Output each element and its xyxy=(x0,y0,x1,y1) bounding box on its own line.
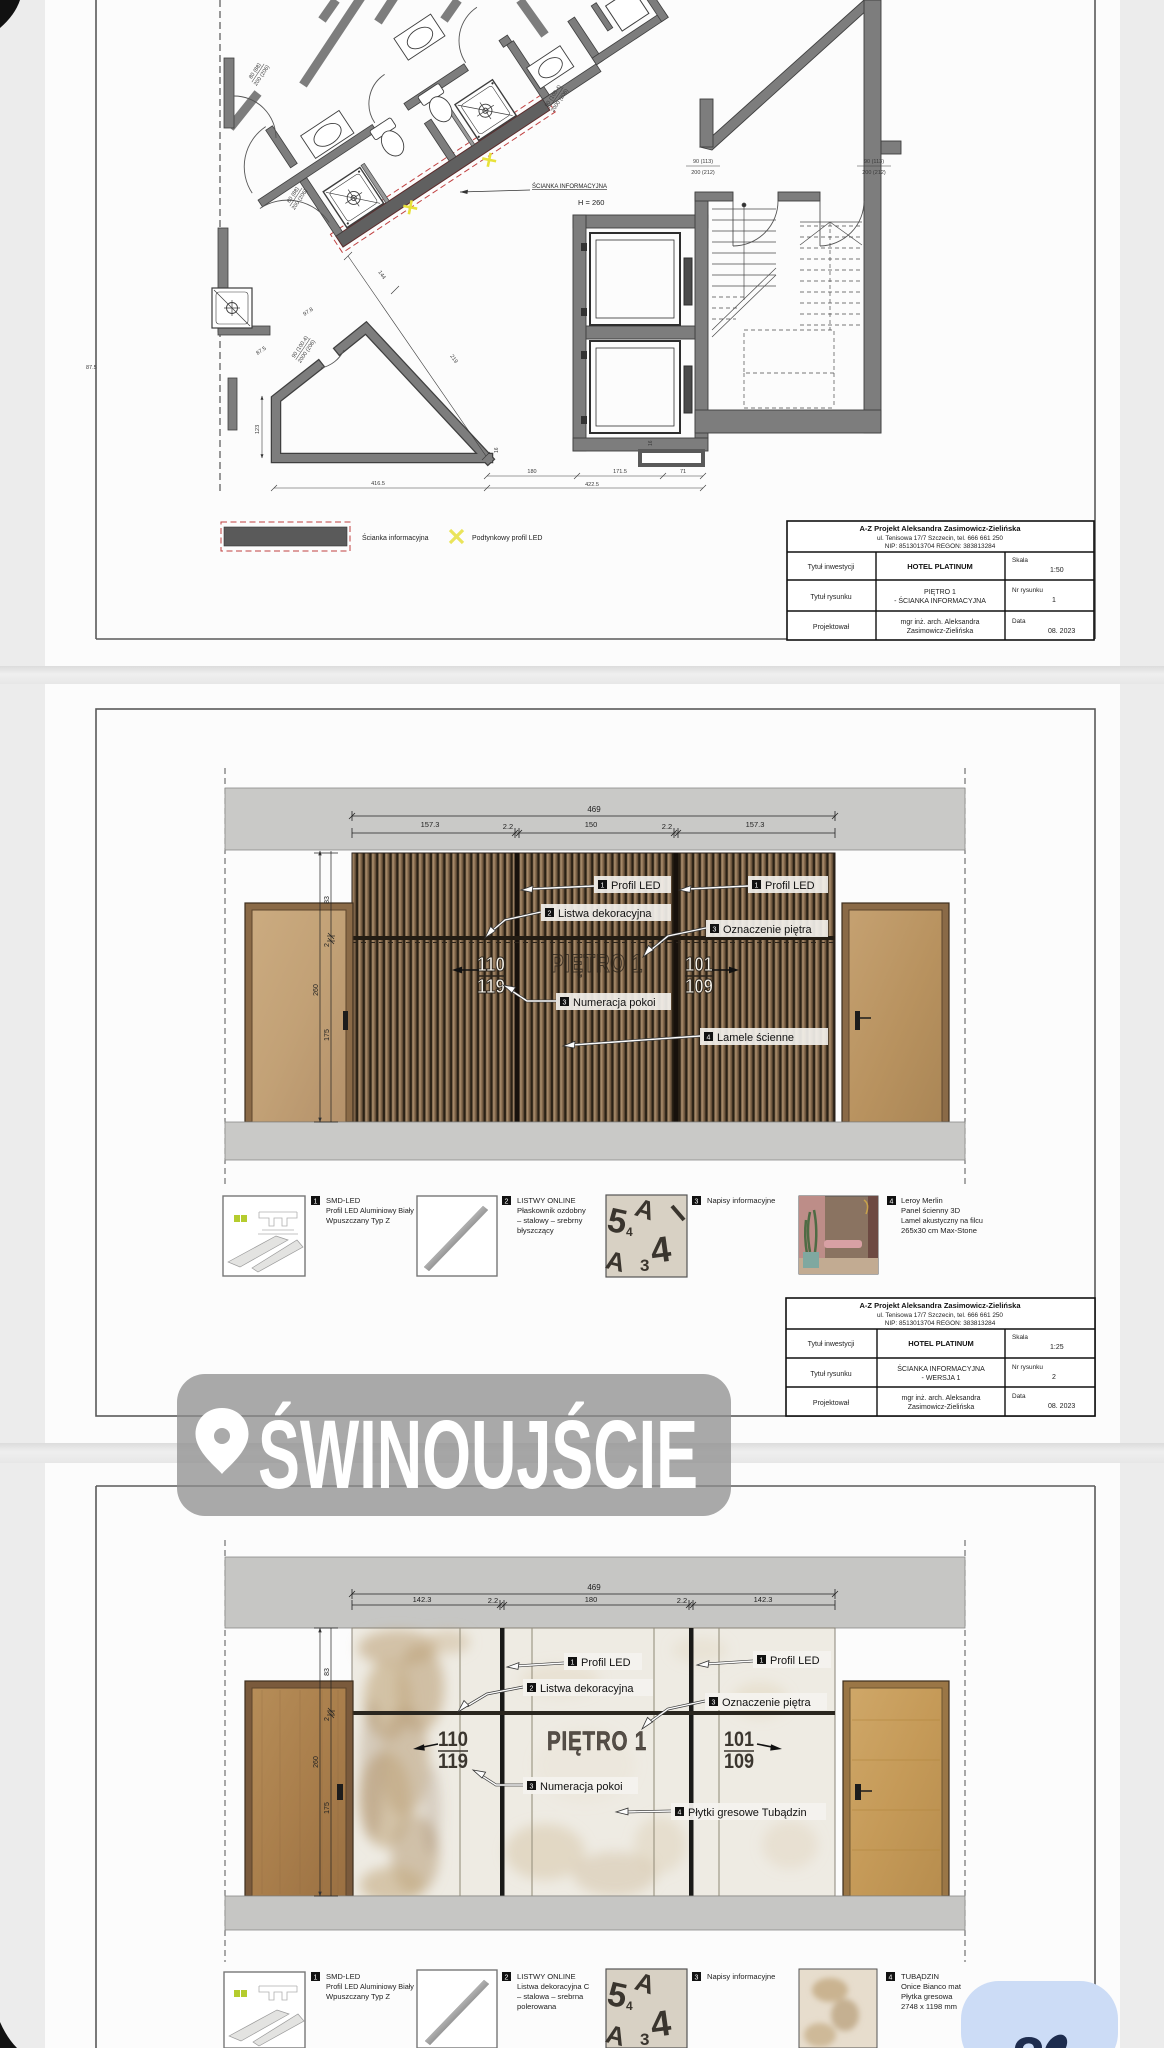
svg-text:87.5: 87.5 xyxy=(86,365,97,371)
svg-text:HOTEL PLATINUM: HOTEL PLATINUM xyxy=(908,1339,974,1348)
svg-text:Listwa dekoracyjna: Listwa dekoracyjna xyxy=(558,908,652,920)
svg-text:1: 1 xyxy=(601,883,605,890)
svg-text:Leroy Merlin: Leroy Merlin xyxy=(901,1196,943,1205)
svg-text:Wpuszczany Typ Z: Wpuszczany Typ Z xyxy=(326,1992,390,2001)
svg-text:1: 1 xyxy=(760,1658,764,1665)
svg-text:119: 119 xyxy=(477,976,505,998)
svg-text:Płytki gresowe Tubądzin: Płytki gresowe Tubądzin xyxy=(688,1807,807,1819)
svg-text:A-Z Projekt Aleksandra Zasimow: A-Z Projekt Aleksandra Zasimowicz-Zieliń… xyxy=(859,1301,1021,1310)
svg-text:błyszczący: błyszczący xyxy=(517,1226,554,1235)
svg-text:109: 109 xyxy=(685,976,713,998)
svg-text:Ścianka informacyjna: Ścianka informacyjna xyxy=(362,533,429,542)
svg-text:260: 260 xyxy=(313,1756,320,1768)
svg-text:– stalowy – srebrny: – stalowy – srebrny xyxy=(517,1216,583,1225)
svg-text:Lamele ścienne: Lamele ścienne xyxy=(717,1032,794,1044)
svg-text:Skala: Skala xyxy=(1012,557,1028,564)
svg-text:110: 110 xyxy=(438,1728,468,1751)
svg-text:4: 4 xyxy=(626,1999,633,2013)
svg-text:2: 2 xyxy=(1052,1374,1056,1381)
svg-text:SMD-LED: SMD-LED xyxy=(326,1196,361,1205)
svg-text:119: 119 xyxy=(438,1750,468,1773)
svg-text:Listwa dekoracyjna: Listwa dekoracyjna xyxy=(540,1683,634,1695)
svg-text:1:50: 1:50 xyxy=(1050,567,1064,574)
svg-text:2: 2 xyxy=(324,943,331,947)
svg-text:Projektował: Projektował xyxy=(813,1400,850,1407)
svg-text:4: 4 xyxy=(678,1810,682,1817)
svg-text:PIĘTRO 1: PIĘTRO 1 xyxy=(547,1726,647,1756)
svg-text:3: 3 xyxy=(712,1700,716,1707)
svg-text:157.3: 157.3 xyxy=(746,820,765,829)
svg-text:90 (113): 90 (113) xyxy=(693,159,713,165)
svg-text:2: 2 xyxy=(505,1199,509,1206)
svg-text:ŚWINOUJŚCIE: ŚWINOUJŚCIE xyxy=(258,1400,698,1509)
svg-text:PIĘTRO 1: PIĘTRO 1 xyxy=(924,589,956,596)
svg-text:LISTWY ONLINE: LISTWY ONLINE xyxy=(517,1972,576,1981)
svg-text:Onice Bianco mat: Onice Bianco mat xyxy=(901,1982,962,1991)
svg-text:Nr rysunku: Nr rysunku xyxy=(1012,1364,1043,1371)
svg-text:2748 x 1198 mm: 2748 x 1198 mm xyxy=(901,2002,957,2011)
svg-text:Tytuł rysunku: Tytuł rysunku xyxy=(810,594,851,601)
svg-text:08. 2023: 08. 2023 xyxy=(1048,628,1075,635)
svg-text:2: 2 xyxy=(530,1686,534,1693)
svg-text:SMD-LED: SMD-LED xyxy=(326,1972,361,1981)
svg-text:416.5: 416.5 xyxy=(371,481,385,487)
svg-text:101: 101 xyxy=(685,954,713,976)
svg-text:123: 123 xyxy=(255,425,261,434)
svg-text:4: 4 xyxy=(890,1199,894,1206)
svg-text:171.5: 171.5 xyxy=(613,469,627,475)
svg-text:3: 3 xyxy=(695,1975,699,1982)
svg-text:260: 260 xyxy=(313,984,320,996)
svg-text:142.3: 142.3 xyxy=(754,1595,773,1604)
svg-text:Zasimowicz-Zielińska: Zasimowicz-Zielińska xyxy=(907,628,974,635)
svg-text:Płaskownik ozdobny: Płaskownik ozdobny xyxy=(517,1206,586,1215)
svg-text:Projektował: Projektował xyxy=(813,624,850,631)
svg-text:265x30 cm Max-Stone: 265x30 cm Max-Stone xyxy=(901,1226,977,1235)
svg-text:ul. Tenisowa 17/7 Szczecin, te: ul. Tenisowa 17/7 Szczecin, tel. 666 661… xyxy=(877,1312,1003,1319)
svg-text:2: 2 xyxy=(548,911,552,918)
svg-text:Tytuł rysunku: Tytuł rysunku xyxy=(810,1371,851,1378)
svg-text:83: 83 xyxy=(324,896,331,904)
svg-text:1: 1 xyxy=(571,1660,575,1667)
svg-text:90 (113): 90 (113) xyxy=(864,159,884,165)
svg-text:180: 180 xyxy=(585,1595,598,1604)
svg-text:16: 16 xyxy=(494,447,500,453)
svg-text:Data: Data xyxy=(1012,1393,1026,1400)
svg-text:Profil LED: Profil LED xyxy=(581,1657,631,1669)
svg-text:2: 2 xyxy=(505,1975,509,1982)
svg-text:Listwa dekoracyjna C: Listwa dekoracyjna C xyxy=(517,1982,590,1991)
svg-text:1: 1 xyxy=(314,1975,318,1982)
svg-text:Płytka gresowa: Płytka gresowa xyxy=(901,1992,953,2001)
svg-text:H = 260: H = 260 xyxy=(578,198,604,207)
svg-text:- WERSJA 1: - WERSJA 1 xyxy=(922,1375,961,1382)
svg-text:110: 110 xyxy=(477,954,505,976)
svg-text:Profil LED: Profil LED xyxy=(765,880,815,892)
svg-text:NIP: 8513013704 REGON: 3838132: NIP: 8513013704 REGON: 383813284 xyxy=(885,1320,996,1327)
svg-text:Oznaczenie piętra: Oznaczenie piętra xyxy=(723,924,813,936)
svg-text:A-Z Projekt Aleksandra Zasimow: A-Z Projekt Aleksandra Zasimowicz-Zieliń… xyxy=(859,524,1021,533)
svg-text:200 (212): 200 (212) xyxy=(862,170,886,176)
svg-text:469: 469 xyxy=(587,805,601,814)
svg-text:Napisy informacyjne: Napisy informacyjne xyxy=(707,1972,775,1981)
svg-text:109: 109 xyxy=(724,1750,754,1773)
svg-text:2.2: 2.2 xyxy=(503,822,513,831)
svg-text:Skala: Skala xyxy=(1012,1334,1028,1341)
svg-text:101: 101 xyxy=(724,1728,754,1751)
svg-text:142.3: 142.3 xyxy=(413,1595,432,1604)
svg-text:Profil LED: Profil LED xyxy=(770,1655,820,1667)
svg-text:2.2: 2.2 xyxy=(662,822,672,831)
svg-text:Numeracja pokoi: Numeracja pokoi xyxy=(573,997,656,1009)
svg-text:1: 1 xyxy=(755,883,759,890)
svg-text:16: 16 xyxy=(648,440,654,446)
svg-text:Profil LED: Profil LED xyxy=(611,880,661,892)
svg-text:469: 469 xyxy=(587,1583,601,1592)
svg-text:83: 83 xyxy=(324,1668,331,1676)
svg-text:3: 3 xyxy=(563,1000,567,1007)
svg-text:PIĘTRO 1: PIĘTRO 1 xyxy=(551,950,643,978)
svg-text:Data: Data xyxy=(1012,618,1026,625)
svg-text:2: 2 xyxy=(324,1717,331,1721)
svg-text:2.2: 2.2 xyxy=(677,1596,687,1605)
svg-text:Panel ścienny 3D: Panel ścienny 3D xyxy=(901,1206,961,1215)
svg-text:422.5: 422.5 xyxy=(585,482,599,488)
svg-text:Tytuł inwestycji: Tytuł inwestycji xyxy=(808,1341,855,1348)
svg-text:polerowana: polerowana xyxy=(517,2002,557,2011)
svg-text:Oznaczenie piętra: Oznaczenie piętra xyxy=(722,1697,812,1709)
svg-text:Tytuł inwestycji: Tytuł inwestycji xyxy=(808,564,855,571)
svg-text:Profil LED Aluminiowy Biały: Profil LED Aluminiowy Biały xyxy=(326,1206,414,1215)
svg-text:Profil LED Aluminiowy Biały: Profil LED Aluminiowy Biały xyxy=(326,1982,414,1991)
svg-text:4: 4 xyxy=(626,1225,633,1239)
svg-text:– stalowa – srebrna: – stalowa – srebrna xyxy=(517,1992,584,2001)
svg-text:1: 1 xyxy=(314,1199,318,1206)
svg-text:71: 71 xyxy=(680,469,686,475)
svg-text:Wpuszczany Typ Z: Wpuszczany Typ Z xyxy=(326,1216,390,1225)
svg-text:NIP: 8513013704 REGON: 3838132: NIP: 8513013704 REGON: 383813284 xyxy=(885,543,996,550)
svg-text:4: 4 xyxy=(889,1975,893,1982)
svg-text:150: 150 xyxy=(585,820,598,829)
svg-text:Numeracja pokoi: Numeracja pokoi xyxy=(540,1781,623,1793)
svg-text:3: 3 xyxy=(1013,2026,1045,2048)
svg-text:mgr inż. arch. Aleksandra: mgr inż. arch. Aleksandra xyxy=(902,1395,981,1402)
svg-text:3: 3 xyxy=(530,1784,534,1791)
svg-text:180: 180 xyxy=(527,469,536,475)
svg-text:200 (212): 200 (212) xyxy=(691,170,715,176)
svg-text:4: 4 xyxy=(707,1035,711,1042)
svg-text:175: 175 xyxy=(324,1802,331,1814)
svg-text:3: 3 xyxy=(695,1199,699,1206)
svg-text:2.2: 2.2 xyxy=(488,1596,498,1605)
svg-text:Lamel akustyczny na filcu: Lamel akustyczny na filcu xyxy=(901,1216,983,1225)
svg-text:TUBĄDZIN: TUBĄDZIN xyxy=(901,1972,939,1981)
svg-text:157.3: 157.3 xyxy=(421,820,440,829)
svg-text:1:25: 1:25 xyxy=(1050,1344,1064,1351)
svg-text:ul. Tenisowa 17/7 Szczecin, te: ul. Tenisowa 17/7 Szczecin, tel. 666 661… xyxy=(877,535,1003,542)
svg-text:- ŚCIANKA INFORMACYJNA: - ŚCIANKA INFORMACYJNA xyxy=(894,596,986,605)
svg-text:3: 3 xyxy=(640,2030,649,2048)
svg-text:ŚCIANKA INFORMACYJNA: ŚCIANKA INFORMACYJNA xyxy=(532,182,607,190)
svg-text:Zasimowicz-Zielińska: Zasimowicz-Zielińska xyxy=(908,1404,975,1411)
svg-text:Nr rysunku: Nr rysunku xyxy=(1012,587,1043,594)
svg-text:3: 3 xyxy=(640,1256,649,1275)
svg-text:mgr inż. arch. Aleksandra: mgr inż. arch. Aleksandra xyxy=(901,619,980,626)
svg-text:Napisy informacyjne: Napisy informacyjne xyxy=(707,1196,775,1205)
svg-text:Podtynkowy profil LED: Podtynkowy profil LED xyxy=(472,535,542,542)
svg-text:ŚCIANKA INFORMACYJNA: ŚCIANKA INFORMACYJNA xyxy=(897,1364,985,1373)
svg-text:3: 3 xyxy=(713,927,717,934)
svg-text:175: 175 xyxy=(324,1029,331,1041)
svg-text:1: 1 xyxy=(1052,597,1056,604)
svg-text:08. 2023: 08. 2023 xyxy=(1048,1403,1075,1410)
svg-text:HOTEL PLATINUM: HOTEL PLATINUM xyxy=(907,562,973,571)
svg-text:LISTWY ONLINE: LISTWY ONLINE xyxy=(517,1196,576,1205)
